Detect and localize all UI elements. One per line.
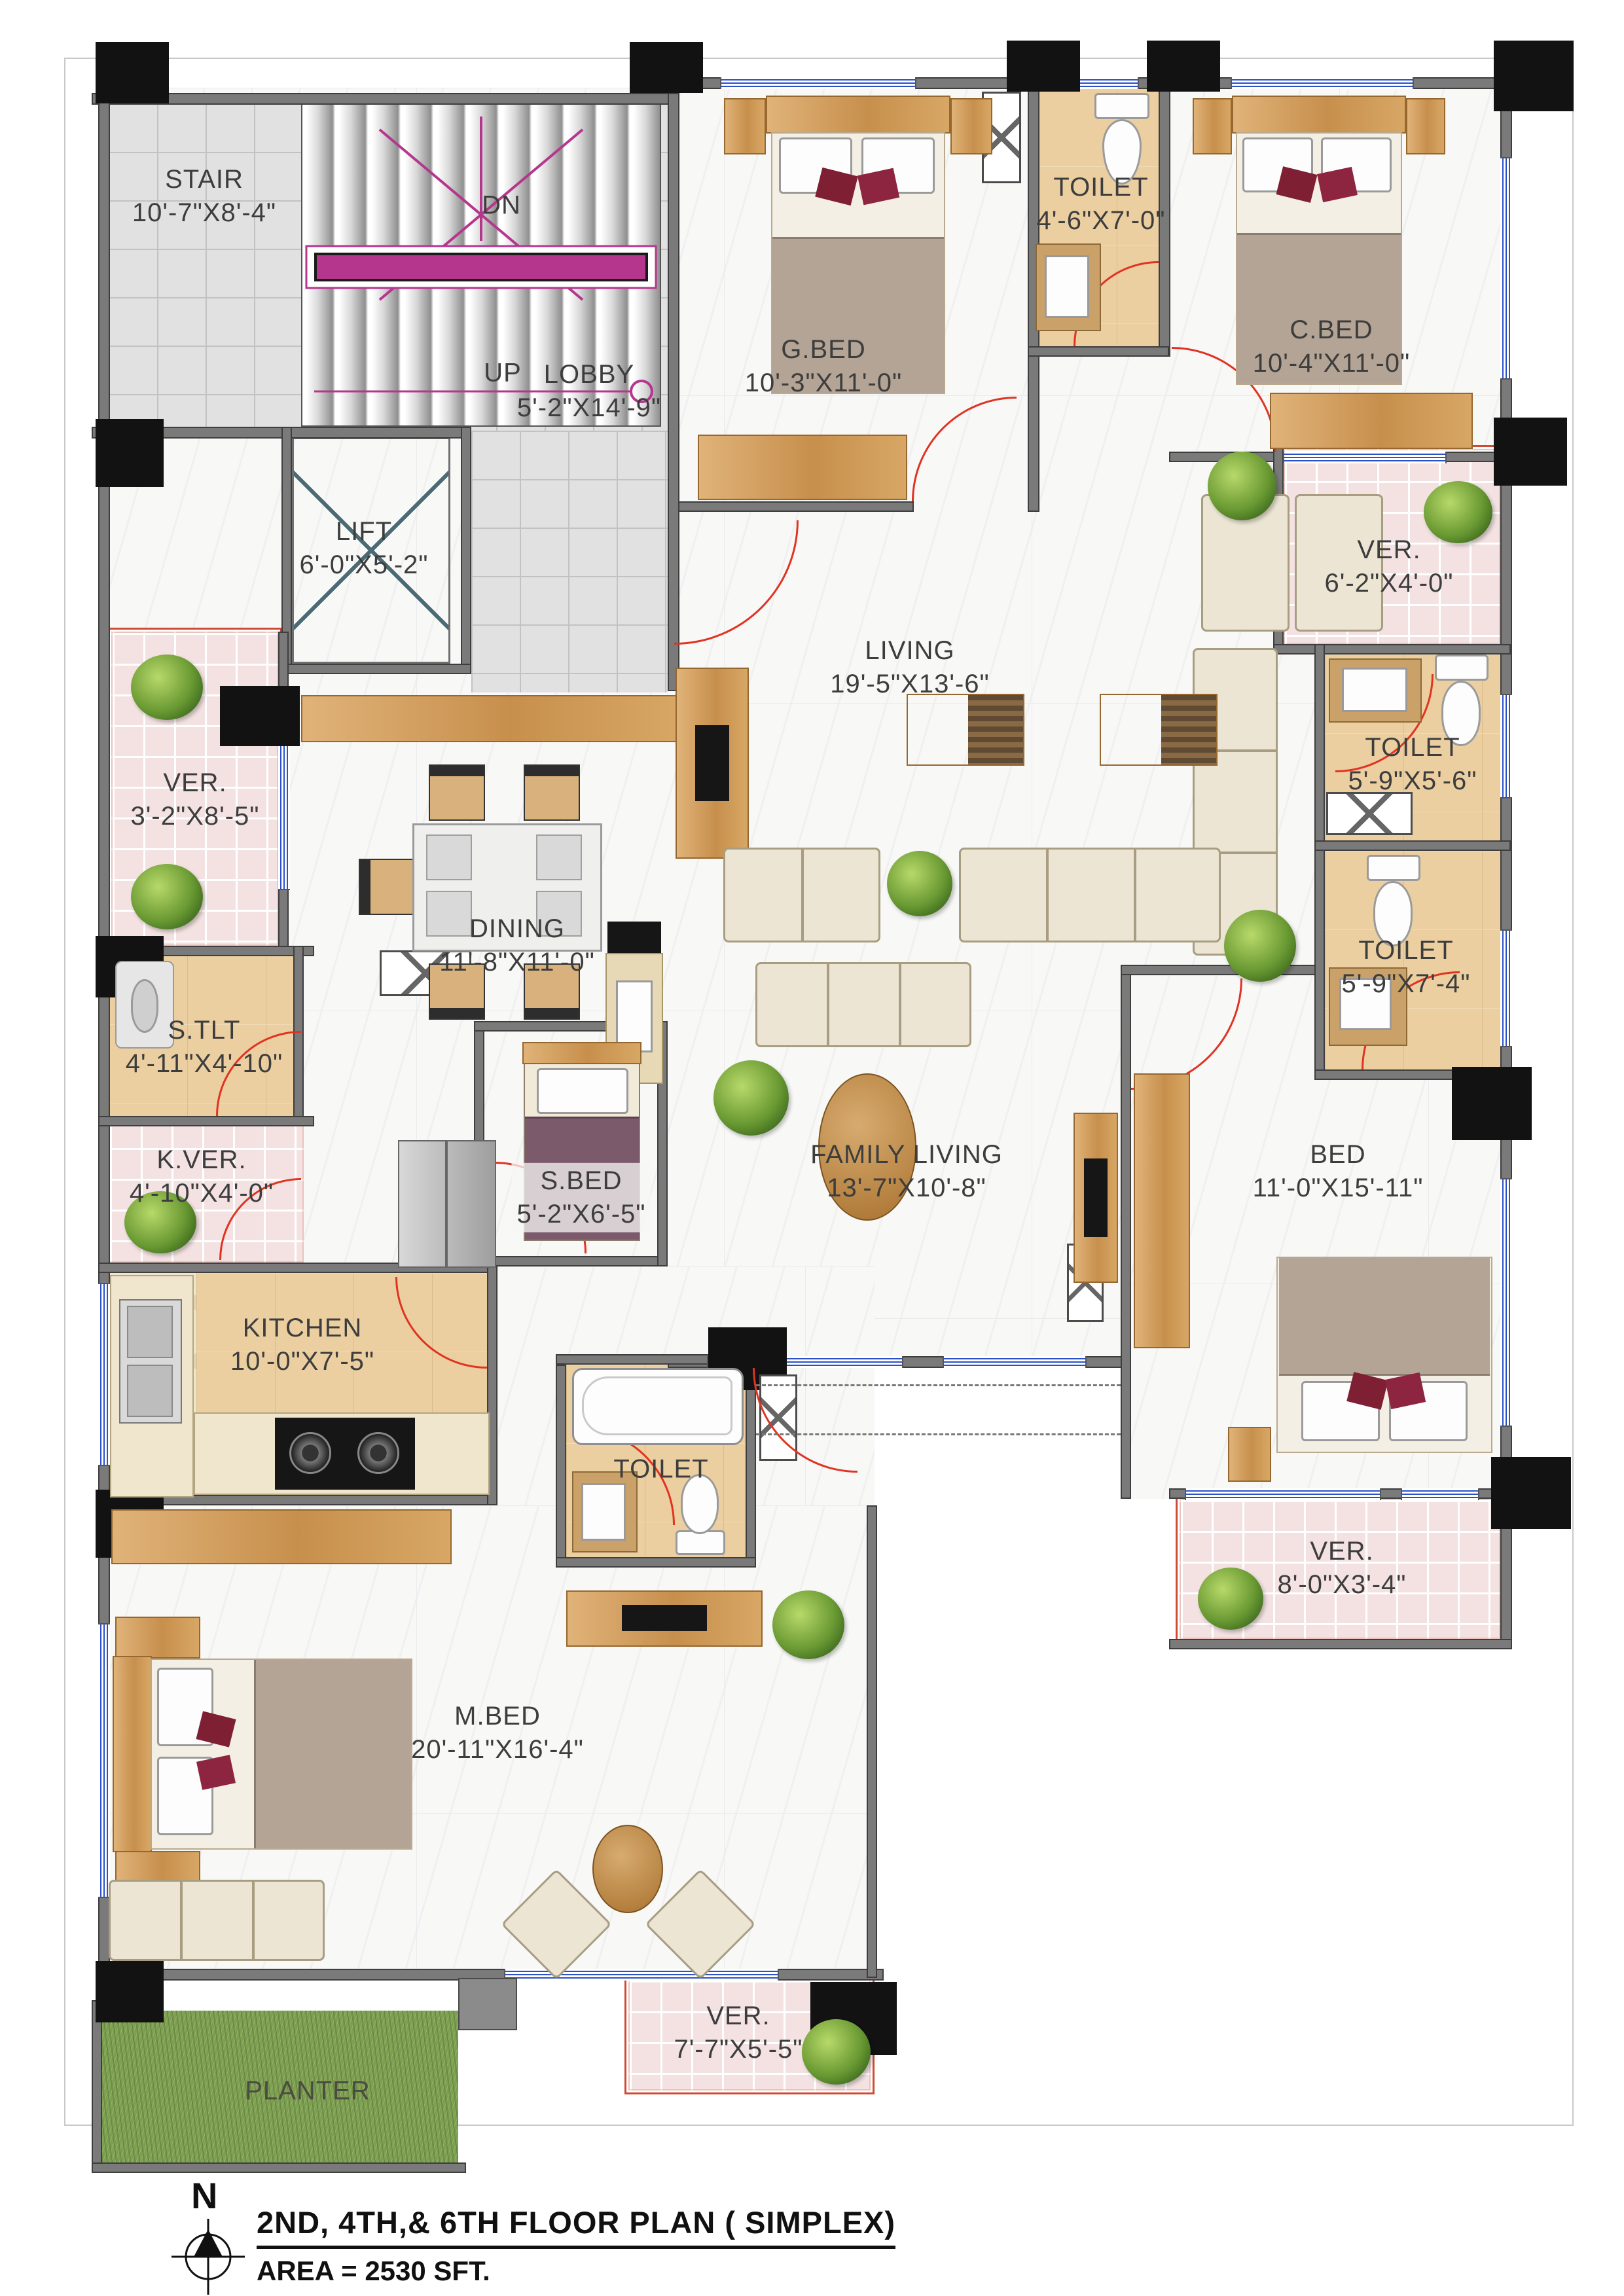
room-dims: 10'-7"X8'-4" <box>132 196 276 230</box>
wall <box>556 1365 566 1568</box>
room-dims: 5'-9"X5'-6" <box>1348 764 1477 798</box>
window <box>1185 1488 1381 1500</box>
dining-chair <box>429 764 485 821</box>
room-dims: 11'-0"X15'-11" <box>1253 1172 1424 1205</box>
room-name: VER. <box>131 766 260 800</box>
wall <box>678 501 914 512</box>
room-label-ver-bottom: VER. 7'-7"X5'-5" <box>674 2000 803 2066</box>
window <box>943 1356 1087 1368</box>
cbed-wardrobe <box>1270 393 1473 449</box>
plant <box>1198 1568 1263 1630</box>
room-label-lift: LIFT 6'-0"X5'-2" <box>300 515 429 582</box>
window <box>1500 157 1512 380</box>
wall <box>92 93 678 105</box>
void-line <box>756 1384 1121 1386</box>
room-name: DINING <box>439 912 595 946</box>
window <box>98 1623 110 1898</box>
room-dims: 20'-11"X16'-4" <box>411 1733 584 1767</box>
window <box>1283 452 1447 463</box>
room-label-ver-tr: VER. 6'-2"X4'-0" <box>1325 533 1454 600</box>
cbed-side-table <box>1406 98 1445 154</box>
room-name: STAIR <box>132 163 276 196</box>
room-dims: 4'-6"X7'-0" <box>1037 204 1166 238</box>
column <box>1491 1457 1571 1529</box>
column <box>1494 41 1574 111</box>
label-dn: DN <box>482 188 521 222</box>
dining-chair <box>359 859 415 915</box>
room-dims: 10'-3"X11'-0" <box>745 367 903 400</box>
toilet-r1-basin <box>1329 658 1422 723</box>
room-name: S.BED <box>517 1164 646 1198</box>
living-tv <box>695 725 729 801</box>
wall <box>1169 1639 1512 1649</box>
room-label-toilet-master: TOILET <box>613 1452 708 1486</box>
room-label-planter: PLANTER <box>245 2074 370 2108</box>
room-name: TOILET <box>613 1452 708 1486</box>
room-label-cbed: C.BED 10'-4"X11'-0" <box>1253 314 1411 380</box>
dining-chair <box>524 764 580 821</box>
room-name: TOILET <box>1348 731 1477 764</box>
bed-bed <box>1276 1257 1492 1453</box>
north-letter: N <box>191 2174 217 2217</box>
room-label-bed: BED 11'-0"X15'-11" <box>1253 1138 1424 1205</box>
room-dims: 4'-11"X4'-10" <box>126 1047 283 1081</box>
room-dims: 10'-4"X11'-0" <box>1253 347 1411 380</box>
room-dims: 11'-8"X11'-0" <box>439 946 595 979</box>
window <box>504 1969 779 1981</box>
column <box>458 1978 517 2030</box>
kitchen-stove <box>275 1418 415 1490</box>
room-name: LOBBY <box>517 358 661 391</box>
room-dims: 7'-7"X5'-5" <box>674 2033 803 2066</box>
room-name: BED <box>1253 1138 1424 1172</box>
room-label-stair: STAIR 10'-7"X8'-4" <box>132 163 276 230</box>
wall <box>1273 644 1511 655</box>
window <box>1401 1488 1479 1500</box>
mbed-sofa <box>109 1880 325 1961</box>
master-bathtub <box>572 1368 744 1445</box>
room-dims: 5'-2"X14'-9" <box>517 391 661 425</box>
room-name: VER. <box>1325 533 1454 567</box>
room-label-gbed: G.BED 10'-3"X11'-0" <box>745 333 903 400</box>
room-name: LIFT <box>300 515 429 548</box>
plant <box>713 1060 789 1136</box>
room-dims: 13'-7"X10'-8" <box>810 1172 1003 1205</box>
wall <box>1314 644 1325 1080</box>
room-dims: 19'-5"X13'-6" <box>830 668 989 701</box>
gbed-wardrobe <box>698 435 907 500</box>
mbed-wardrobe <box>111 1509 452 1564</box>
lobby-console <box>301 695 681 742</box>
master-commode <box>673 1474 729 1556</box>
gbed-side-table <box>950 98 992 154</box>
wall <box>556 1557 756 1568</box>
column <box>1494 418 1567 486</box>
room-name: PLANTER <box>245 2074 370 2108</box>
wall <box>1314 840 1511 851</box>
void-line <box>756 1433 1121 1435</box>
room-name: TOILET <box>1037 171 1166 204</box>
wall <box>461 427 471 674</box>
plant <box>1224 910 1296 982</box>
plan-area: AREA = 2530 SFT. <box>257 2255 490 2287</box>
floor-lobby-corridor <box>471 431 668 692</box>
room-label-toilet-r2: TOILET 5'-9"X7'-4" <box>1342 934 1471 1001</box>
window <box>1500 1178 1512 1427</box>
floor-plan-canvas: STAIR 10'-7"X8'-4" DN UP LOBBY 5'-2"X14'… <box>0 0 1624 2296</box>
family-sofa <box>755 962 971 1047</box>
bed-side-table <box>1228 1427 1271 1482</box>
room-label-toilet-r1: TOILET 5'-9"X5'-6" <box>1348 731 1477 798</box>
room-label-lobby: LOBBY 5'-2"X14'-9" <box>517 358 661 425</box>
room-name: G.BED <box>745 333 903 367</box>
column <box>1007 41 1080 92</box>
wall <box>1121 965 1325 975</box>
mbed-bed <box>151 1659 412 1850</box>
room-label-family: FAMILY LIVING 13'-7"X10'-8" <box>810 1138 1003 1205</box>
room-label-mbed: M.BED 20'-11"X16'-4" <box>411 1700 584 1767</box>
plant <box>1208 452 1276 520</box>
wall <box>1121 965 1131 1499</box>
room-dims: 6'-2"X4'-0" <box>1325 567 1454 600</box>
window <box>98 1283 110 1466</box>
room-dims: 10'-0"X7'-5" <box>230 1345 374 1378</box>
room-label-kver: K.VER. 4'-10"X4'-0" <box>130 1143 274 1210</box>
room-name: C.BED <box>1253 314 1411 347</box>
window <box>1500 694 1512 798</box>
gbed-side-table <box>724 98 766 154</box>
column <box>1452 1067 1532 1140</box>
room-name: LIVING <box>830 634 989 668</box>
window <box>1500 929 1512 1047</box>
room-dims: 3'-2"X8'-5" <box>131 800 260 833</box>
coffee-table <box>907 694 1024 766</box>
gbed-headboard <box>766 96 950 134</box>
room-dims: 8'-0"X3'-4" <box>1278 1568 1407 1602</box>
north-compass-icon <box>169 2217 247 2296</box>
wall <box>98 1116 314 1126</box>
coffee-table <box>1100 694 1218 766</box>
duct-shaft <box>1326 792 1413 835</box>
column <box>96 1961 164 2022</box>
wash-basin-tv-panel <box>607 922 661 953</box>
room-dims: 5'-9"X7'-4" <box>1342 967 1471 1001</box>
family-tv <box>1084 1158 1108 1237</box>
room-label-living: LIVING 19'-5"X13'-6" <box>830 634 989 701</box>
cbed-headboard <box>1232 96 1406 134</box>
wall <box>746 1365 756 1568</box>
fridge <box>398 1140 496 1268</box>
plant <box>131 864 203 929</box>
room-name: VER. <box>674 2000 803 2033</box>
column <box>96 419 164 487</box>
room-label-toilet-top: TOILET 4'-6"X7'-0" <box>1037 171 1166 238</box>
room-dims: 6'-0"X5'-2" <box>300 548 429 582</box>
column <box>220 686 300 746</box>
wall <box>867 1505 877 1978</box>
living-sofa-row <box>959 848 1221 942</box>
wall <box>281 664 471 674</box>
plan-title: 2ND, 4TH,& 6TH FLOOR PLAN ( SIMPLEX) <box>257 2204 895 2249</box>
column <box>630 42 703 93</box>
wall <box>92 2162 466 2173</box>
mbed-tv <box>622 1605 707 1631</box>
toilet-top-basin <box>1036 243 1101 331</box>
room-name: M.BED <box>411 1700 584 1733</box>
room-name: S.TLT <box>126 1014 283 1047</box>
mbed-headboard <box>113 1656 152 1852</box>
wall <box>1028 346 1169 357</box>
room-name: FAMILY LIVING <box>810 1138 1003 1172</box>
window <box>1231 77 1414 89</box>
room-name: KITCHEN <box>230 1312 374 1345</box>
wall <box>92 2000 102 2173</box>
mbed-side-table <box>115 1617 200 1659</box>
room-dims: 4'-10"X4'-0" <box>130 1177 274 1210</box>
room-label-ver-left: VER. 3'-2"X8'-5" <box>131 766 260 833</box>
column <box>96 42 169 103</box>
room-label-dining: DINING 11'-8"X11'-0" <box>439 912 595 979</box>
mbed-round-table <box>592 1825 663 1913</box>
room-label-stlt: S.TLT 4'-11"X4'-10" <box>126 1014 283 1081</box>
plant <box>802 2019 871 2085</box>
plant <box>772 1590 844 1659</box>
plant <box>887 851 952 916</box>
room-name: VER. <box>1278 1535 1407 1568</box>
room-dims: 5'-2"X6'-5" <box>517 1198 646 1231</box>
column <box>1147 41 1220 92</box>
room-label-sbed: S.BED 5'-2"X6'-5" <box>512 1163 651 1232</box>
cbed-side-table <box>1193 98 1232 154</box>
bed-wardrobe <box>1134 1073 1190 1348</box>
room-label-ver-br: VER. 8'-0"X3'-4" <box>1278 1535 1407 1602</box>
living-sofa-row <box>723 848 880 942</box>
label-up: UP <box>484 356 522 389</box>
plant <box>131 655 203 720</box>
room-name: TOILET <box>1342 934 1471 967</box>
room-name: K.VER. <box>130 1143 274 1177</box>
wall <box>474 1256 668 1266</box>
kitchen-sink <box>119 1299 182 1424</box>
room-label-kitchen: KITCHEN 10'-0"X7'-5" <box>230 1312 374 1378</box>
window <box>720 77 916 89</box>
